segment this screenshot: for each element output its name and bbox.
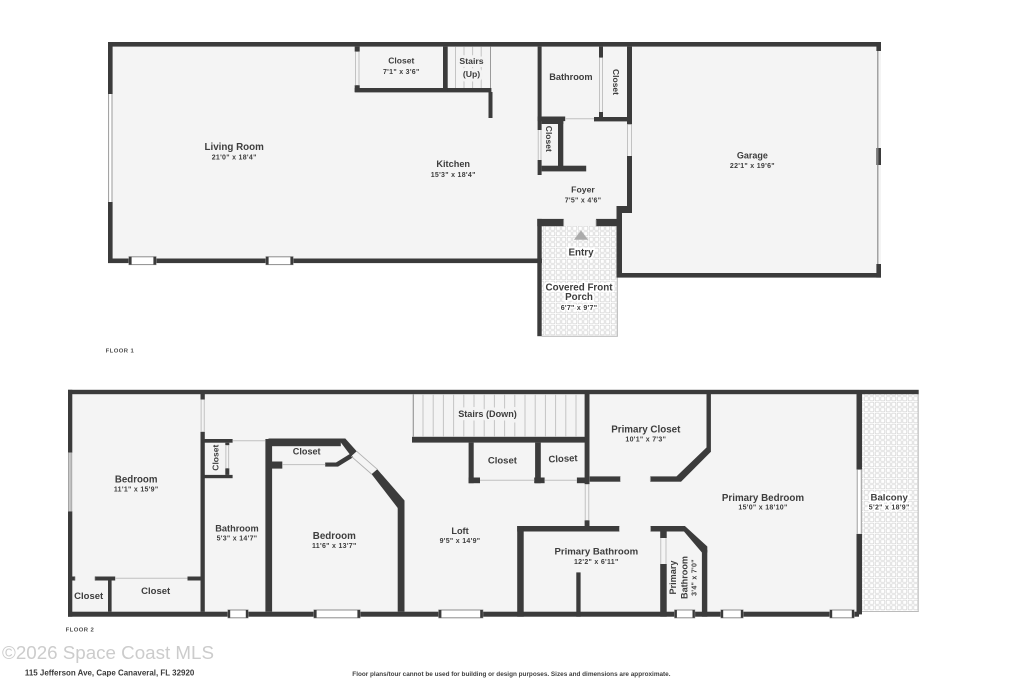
svg-text:Closet: Closet <box>611 69 621 95</box>
svg-text:10'1" x 7'3": 10'1" x 7'3" <box>625 437 666 444</box>
svg-text:Garage: Garage <box>737 151 768 161</box>
svg-text:Primary Bathroom: Primary Bathroom <box>554 547 638 558</box>
svg-text:15'0" x 18'10": 15'0" x 18'10" <box>738 505 787 512</box>
svg-text:Closet: Closet <box>488 455 518 466</box>
svg-text:FLOOR 2: FLOOR 2 <box>66 628 95 634</box>
svg-text:Floor plans/tour cannot be use: Floor plans/tour cannot be used for buil… <box>352 671 670 678</box>
svg-text:Closet: Closet <box>74 591 104 602</box>
svg-text:Porch: Porch <box>565 292 593 303</box>
svg-text:22'1" x 19'6": 22'1" x 19'6" <box>730 163 775 170</box>
svg-text:115 Jefferson Ave, Cape Canave: 115 Jefferson Ave, Cape Canaveral, FL 32… <box>25 668 195 678</box>
svg-text:Foyer: Foyer <box>571 185 595 195</box>
svg-text:Closet: Closet <box>548 453 578 466</box>
svg-text:7'1" x 3'6": 7'1" x 3'6" <box>383 69 420 76</box>
svg-text:Stairs: Stairs <box>459 56 483 66</box>
svg-text:(Up): (Up) <box>463 69 480 79</box>
svg-text:7'5" x 4'6": 7'5" x 4'6" <box>565 197 602 204</box>
svg-text:Stairs (Down): Stairs (Down) <box>458 409 517 419</box>
svg-text:Bathroom: Bathroom <box>679 556 689 599</box>
svg-text:Primary Closet: Primary Closet <box>611 425 681 436</box>
svg-text:5'3" x 14'7": 5'3" x 14'7" <box>217 536 258 543</box>
svg-text:15'3" x 18'4": 15'3" x 18'4" <box>431 172 476 179</box>
svg-text:9'5" x 14'9": 9'5" x 14'9" <box>440 538 481 545</box>
svg-text:Closet: Closet <box>544 126 554 152</box>
svg-text:Entry: Entry <box>568 247 594 258</box>
svg-text:FLOOR 1: FLOOR 1 <box>106 349 135 355</box>
svg-text:11'1" x 15'9": 11'1" x 15'9" <box>114 487 159 494</box>
svg-text:12'2" x 6'11": 12'2" x 6'11" <box>574 559 619 566</box>
svg-text:11'6" x 13'7": 11'6" x 13'7" <box>312 543 357 550</box>
svg-text:Kitchen: Kitchen <box>436 159 470 169</box>
svg-text:Bathroom: Bathroom <box>215 524 258 534</box>
svg-text:©2026 Space Coast MLS: ©2026 Space Coast MLS <box>2 643 214 663</box>
svg-text:Closet: Closet <box>388 56 414 66</box>
svg-text:5'2" x 18'9": 5'2" x 18'9" <box>869 505 910 512</box>
svg-text:Bedroom: Bedroom <box>115 474 158 485</box>
svg-text:21'0" x 18'4": 21'0" x 18'4" <box>212 154 257 161</box>
svg-text:Closet: Closet <box>211 445 221 471</box>
svg-text:Primary: Primary <box>668 560 678 595</box>
svg-text:6'7" x 9'7": 6'7" x 9'7" <box>561 305 598 312</box>
svg-text:Balcony: Balcony <box>871 492 909 503</box>
svg-text:Bedroom: Bedroom <box>313 531 356 542</box>
svg-text:Closet: Closet <box>141 586 171 597</box>
svg-text:Living Room: Living Room <box>205 142 265 153</box>
svg-text:Loft: Loft <box>451 526 468 536</box>
svg-text:3'4" x 7'0": 3'4" x 7'0" <box>692 559 699 596</box>
svg-text:Bathroom: Bathroom <box>549 72 592 82</box>
svg-text:Primary Bedroom: Primary Bedroom <box>722 493 805 504</box>
svg-text:Closet: Closet <box>293 447 321 457</box>
